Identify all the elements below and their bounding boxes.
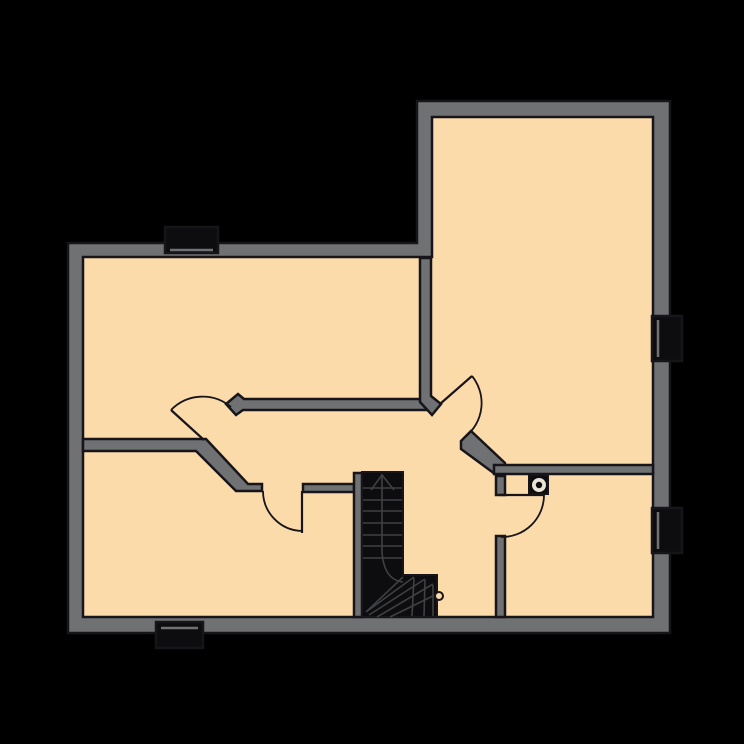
wall-door-stub	[496, 476, 505, 495]
window-right-upper-box	[652, 316, 682, 361]
wall-hall-bottom	[303, 484, 354, 492]
wall-lower-divider	[496, 536, 505, 617]
window-bottom-box	[156, 622, 203, 648]
flue-dot	[536, 482, 542, 488]
floorplan-svg	[0, 0, 744, 744]
wall-kitchen-top	[494, 465, 653, 474]
floorplan	[0, 0, 744, 744]
staircase-knob	[435, 592, 443, 600]
wall-stair-side	[354, 473, 362, 617]
window-right-lower-box	[652, 508, 682, 553]
